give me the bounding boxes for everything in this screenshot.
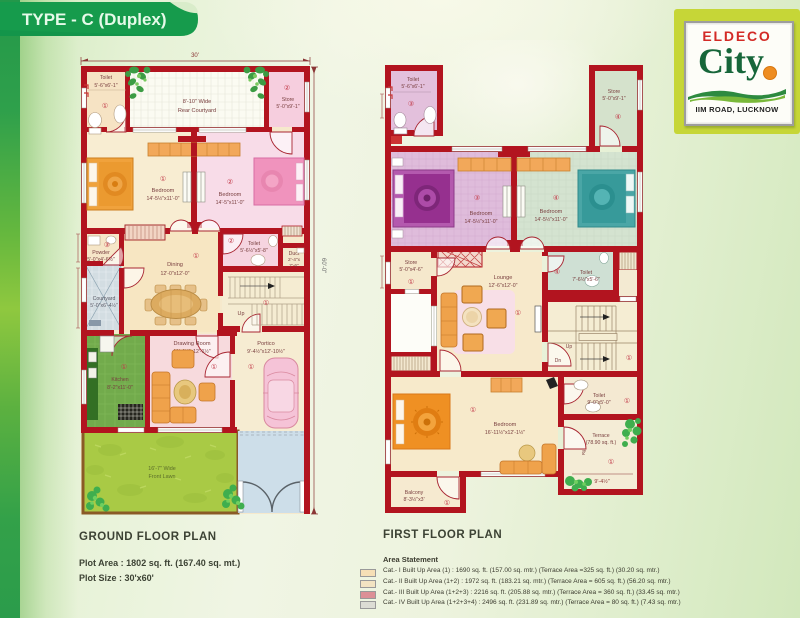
svg-text:①: ① (626, 354, 632, 362)
svg-text:Bedroom: Bedroom (470, 211, 493, 217)
svg-text:5'-6½"x5'-8": 5'-6½"x5'-8" (240, 247, 268, 254)
svg-text:Drawing Room: Drawing Room (174, 341, 211, 347)
svg-text:Lounge: Lounge (494, 275, 513, 281)
svg-text:①: ① (470, 406, 476, 414)
svg-text:③: ③ (408, 100, 414, 108)
svg-text:2'-4"x: 2'-4"x (288, 257, 301, 263)
svg-text:Toilet: Toilet (580, 270, 593, 276)
svg-text:Toilet: Toilet (100, 75, 113, 81)
svg-text:7'-6½"x5'-6": 7'-6½"x5'-6" (572, 276, 600, 283)
svg-text:①: ① (608, 458, 614, 466)
svg-text:Rear Courtyard: Rear Courtyard (178, 108, 216, 114)
svg-text:①: ① (160, 175, 166, 183)
svg-text:16'-11½"x12'-1½": 16'-11½"x12'-1½" (485, 429, 525, 436)
svg-text:Store: Store (405, 260, 418, 266)
svg-text:Toilet: Toilet (407, 77, 420, 83)
svg-text:②: ② (284, 84, 290, 92)
svg-text:16'-7" Wide: 16'-7" Wide (148, 466, 176, 472)
svg-text:①: ① (121, 363, 127, 371)
svg-text:②: ② (227, 178, 233, 186)
svg-text:④: ④ (615, 113, 621, 121)
svg-text:Toilet: Toilet (593, 393, 606, 399)
svg-text:①: ① (211, 363, 217, 371)
svg-text:14'-5½"x11'-0": 14'-5½"x11'-0" (535, 216, 568, 223)
svg-text:Portico: Portico (257, 341, 274, 347)
svg-text:Up: Up (566, 344, 573, 350)
svg-text:5'-0"x4'-6": 5'-0"x4'-6" (399, 267, 422, 273)
svg-text:Dn: Dn (555, 358, 562, 364)
svg-text:5'-0"x4'-6½": 5'-0"x4'-6½" (87, 256, 115, 263)
svg-text:Dining: Dining (167, 262, 183, 268)
svg-text:5'-0"x9'-1": 5'-0"x9'-1" (602, 96, 625, 102)
svg-text:7'-6": 7'-6" (289, 263, 299, 269)
svg-text:5'-0"x6'-4½": 5'-0"x6'-4½" (90, 302, 118, 309)
svg-text:Toilet: Toilet (248, 241, 261, 247)
svg-text:Bedroom: Bedroom (152, 188, 175, 194)
svg-text:Bedroom: Bedroom (540, 209, 563, 215)
svg-text:5'-6"x6'-1": 5'-6"x6'-1" (401, 84, 424, 90)
svg-text:14'-5½"x11'-0": 14'-5½"x11'-0" (147, 195, 180, 202)
svg-text:9'-4½"x12'-10½": 9'-4½"x12'-10½" (247, 348, 285, 355)
svg-text:①: ① (408, 278, 414, 286)
svg-text:①: ① (263, 299, 269, 307)
svg-text:Up: Up (238, 311, 245, 317)
svg-text:8'-2"x11'-0": 8'-2"x11'-0" (107, 385, 133, 391)
svg-text:①: ① (102, 102, 108, 110)
svg-text:Store: Store (282, 97, 295, 103)
svg-text:①: ① (515, 309, 521, 317)
svg-text:④: ④ (554, 268, 560, 276)
svg-text:14'-5½"x11'-0": 14'-5½"x11'-0" (465, 218, 498, 225)
svg-text:30': 30' (191, 53, 199, 59)
svg-text:9'-0"x5'-0": 9'-0"x5'-0" (587, 400, 610, 406)
svg-text:④: ④ (553, 194, 559, 202)
svg-text:Balcony: Balcony (405, 490, 424, 496)
svg-text:Front Lawn: Front Lawn (149, 474, 176, 480)
svg-text:12'-0"x12'-0": 12'-0"x12'-0" (160, 271, 189, 277)
svg-text:Rg: Rg (581, 449, 586, 455)
svg-text:8'-10" Wide: 8'-10" Wide (183, 99, 212, 105)
svg-text:①: ① (248, 363, 254, 371)
svg-text:③: ③ (104, 241, 110, 249)
svg-text:①: ① (193, 252, 199, 260)
svg-text:Powder: Powder (92, 250, 110, 256)
svg-text:Terrace: Terrace (592, 433, 609, 439)
svg-text:14'-5"x11'-0": 14'-5"x11'-0" (216, 200, 245, 206)
svg-text:②: ② (228, 237, 234, 245)
svg-text:①: ① (444, 499, 450, 507)
svg-text:Courtyard: Courtyard (93, 296, 116, 302)
svg-text:8'-3½"x3': 8'-3½"x3' (403, 496, 424, 503)
svg-text:5'-0"x9'-1": 5'-0"x9'-1" (276, 104, 299, 110)
svg-text:Bedroom: Bedroom (219, 192, 242, 198)
svg-text:5'-6"x6'-1": 5'-6"x6'-1" (94, 83, 117, 89)
svg-text:Store: Store (608, 89, 621, 95)
svg-text:12'-6"x12'-0": 12'-6"x12'-0" (488, 283, 517, 289)
svg-text:9'-4½": 9'-4½" (594, 478, 609, 485)
svg-text:①: ① (624, 397, 630, 405)
svg-text:③: ③ (474, 194, 480, 202)
svg-text:Bedroom: Bedroom (494, 422, 517, 428)
svg-text:Kitchen: Kitchen (111, 377, 128, 383)
svg-text:60'-0": 60'-0" (320, 258, 326, 273)
svg-text:(78.90 sq. ft.): (78.90 sq. ft.) (586, 440, 617, 446)
